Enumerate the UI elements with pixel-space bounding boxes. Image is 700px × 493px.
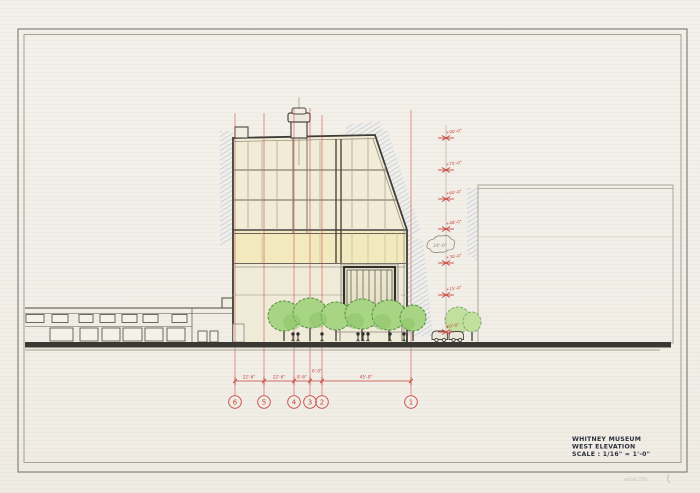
elevation-label: +30'-0" bbox=[445, 253, 462, 260]
corner-checkmark bbox=[668, 474, 670, 483]
grid-bubble-label: 6 bbox=[233, 399, 238, 407]
left-low-building bbox=[25, 298, 236, 342]
dimension-text: 8'-6" bbox=[297, 375, 307, 380]
left-building-upper-windows bbox=[26, 315, 187, 323]
scale-note: SCALE : 1/16" = 1'-0" bbox=[572, 451, 650, 458]
elevation-markers: +90'-0" +75'-0" +60'-0" +48'-0" +30'-0" … bbox=[438, 125, 462, 338]
elevation-label: +15'-0" bbox=[445, 285, 462, 292]
drawing-sheet: +90'-0" +75'-0" +60'-0" +48'-0" +30'-0" … bbox=[0, 0, 700, 493]
grid-bubble-label: 3 bbox=[308, 399, 312, 407]
elevation-label: +48'-0" bbox=[445, 219, 462, 226]
grid-bubble-label: 5 bbox=[262, 399, 266, 407]
right-neighbor-building bbox=[478, 185, 673, 343]
project-title: WHITNEY MUSEUM bbox=[572, 436, 641, 443]
dimension-text: 22'-6" bbox=[273, 375, 286, 380]
dimension-text: 22'-6" bbox=[243, 375, 256, 380]
grid-bubble-label: 2 bbox=[320, 399, 324, 407]
title-block: WHITNEY MUSEUM WEST ELEVATION SCALE : 1/… bbox=[572, 436, 650, 458]
view-title: WEST ELEVATION bbox=[572, 444, 635, 451]
grid-bubbles: 6 5 4 3 2 1 bbox=[229, 396, 418, 409]
left-building-lower-windows bbox=[50, 328, 218, 342]
elevation-label: +75'-0" bbox=[445, 160, 462, 167]
cloud-note: 24'-0" bbox=[427, 235, 455, 252]
grid-bubble-label: 4 bbox=[292, 399, 297, 407]
rooftop-box bbox=[235, 127, 248, 138]
elevation-drawing: +90'-0" +75'-0" +60'-0" +48'-0" +30'-0" … bbox=[0, 0, 700, 493]
elevation-label: +90'-0" bbox=[445, 128, 462, 135]
elevation-label: +60'-0" bbox=[445, 189, 462, 196]
ground-line bbox=[25, 342, 671, 350]
corner-note: whsk.05k bbox=[624, 474, 670, 483]
dimension-text: 6'-0" bbox=[312, 369, 322, 374]
grid-bubble-label: 1 bbox=[409, 399, 413, 407]
dimension-text: 45'-0" bbox=[360, 375, 373, 380]
corner-note-text: whsk.05k bbox=[624, 477, 649, 483]
cloud-text: 24'-0" bbox=[433, 243, 447, 249]
dimension-line: 22'-6" 22'-6" 8'-6" 6'-0" 45'-0" bbox=[233, 369, 413, 386]
light-trees bbox=[445, 307, 481, 333]
